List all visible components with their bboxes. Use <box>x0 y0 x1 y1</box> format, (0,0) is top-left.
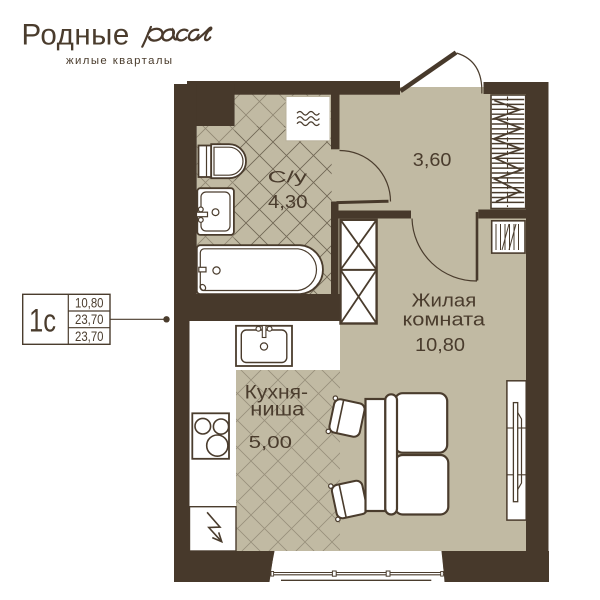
svg-text:комната: комната <box>403 308 486 329</box>
svg-text:23,70: 23,70 <box>75 328 104 344</box>
svg-text:С/у: С/у <box>268 169 309 187</box>
svg-text:4,30: 4,30 <box>268 192 308 212</box>
svg-text:ниша: ниша <box>250 399 304 420</box>
svg-text:10,80: 10,80 <box>75 295 104 311</box>
svg-text:Родные: Родные <box>22 18 130 51</box>
svg-text:5,00: 5,00 <box>249 432 293 452</box>
svg-text:23,70: 23,70 <box>75 311 104 327</box>
svg-text:1с: 1с <box>29 303 56 339</box>
svg-text:3,60: 3,60 <box>413 150 452 170</box>
svg-text:жилые кварталы: жилые кварталы <box>66 55 174 67</box>
svg-text:10,80: 10,80 <box>415 335 465 355</box>
